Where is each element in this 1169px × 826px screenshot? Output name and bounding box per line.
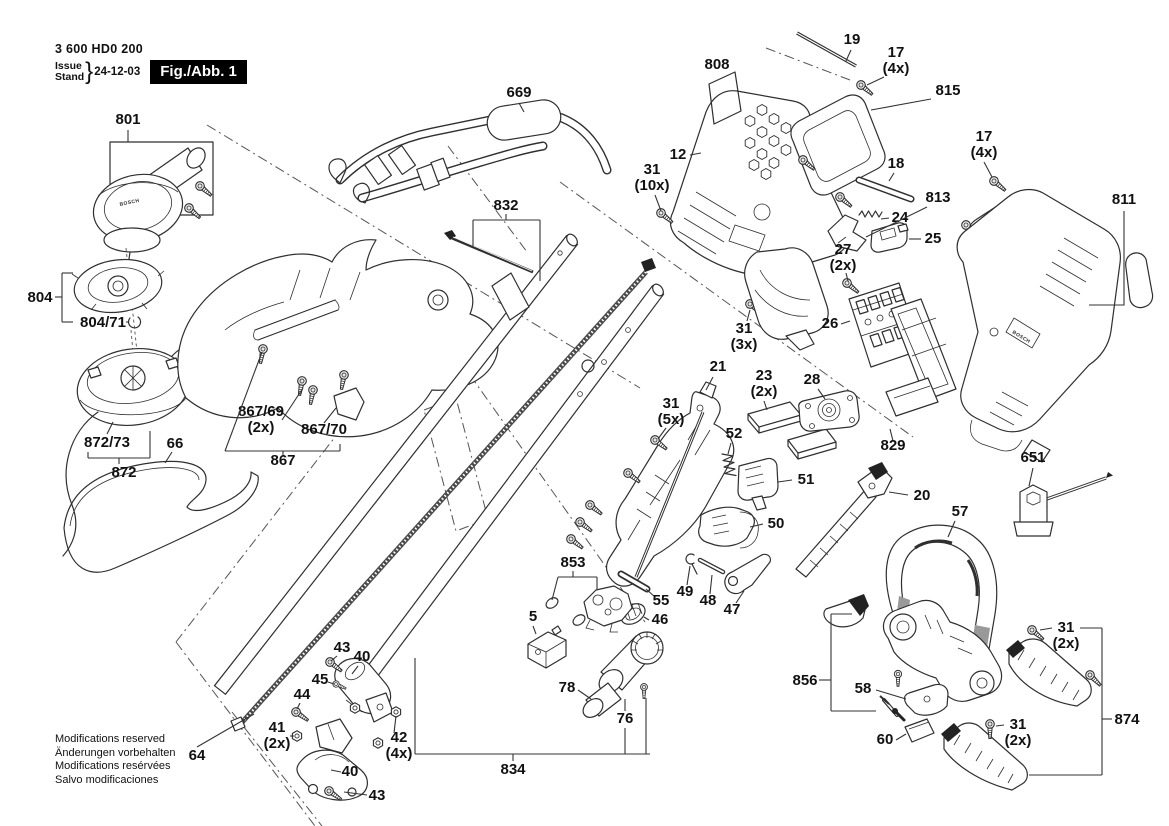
callout-46: 46 <box>652 611 669 628</box>
callout-17-top: 17 <box>888 44 905 61</box>
parts-diagram-page: BOSCH <box>0 0 1169 826</box>
callout-867-69: 867/69 <box>238 403 284 420</box>
hex-tool-651 <box>1014 472 1113 536</box>
bump-guard-loop-66 <box>64 461 258 572</box>
exploded-parts-drawing: BOSCH <box>0 0 1169 826</box>
modifications-notice: Modifications reserved Änderungen vorbeh… <box>55 733 175 787</box>
callout-872: 872 <box>111 464 136 481</box>
leader-20 <box>889 492 908 495</box>
callout-17-right: 17 <box>976 128 993 145</box>
wedge-60 <box>905 719 934 742</box>
callout-60: 60 <box>877 731 894 748</box>
callout-872-73: 872/73 <box>84 434 130 451</box>
callout-31-3x-qty: (3x) <box>731 336 758 353</box>
callout-5: 5 <box>529 608 537 625</box>
callout-669: 669 <box>506 84 531 101</box>
callout-811: 811 <box>1112 191 1136 208</box>
leader-19 <box>846 50 851 61</box>
handle-mount-856 <box>824 594 1002 742</box>
shoulder-strap-669 <box>329 97 607 203</box>
callout-31-2x-b: 31 <box>1010 716 1027 733</box>
callout-57: 57 <box>952 503 969 520</box>
leader-64 <box>197 714 254 747</box>
housing-half-811: BOSCH <box>957 190 1152 462</box>
leader-5 <box>533 626 536 634</box>
coupler-parts <box>528 586 663 721</box>
callout-832: 832 <box>493 197 518 214</box>
clip-49 <box>686 554 697 574</box>
callout-867: 867 <box>270 452 295 469</box>
callout-76: 76 <box>617 710 634 727</box>
switch-5 <box>528 632 566 668</box>
callout-42-qty: (4x) <box>386 745 413 762</box>
stand-label: Stand <box>55 72 84 83</box>
callout-78: 78 <box>559 679 576 696</box>
callout-31-2x-b-qty: (2x) <box>1005 732 1032 749</box>
notice-line-fr: Modifications resérvées <box>55 760 175 774</box>
o-ring <box>571 613 587 628</box>
tube-clamp-group <box>290 656 401 803</box>
leader-31-2x-b <box>996 725 1004 726</box>
callout-801: 801 <box>115 111 140 128</box>
strap-pad <box>485 97 563 142</box>
clamp-58 <box>905 684 948 715</box>
callout-27: 27 <box>835 241 852 258</box>
callout-41: 41 <box>269 719 286 736</box>
issue-stand-labels: Issue Stand <box>55 61 84 83</box>
leader-17-top <box>867 77 884 85</box>
leader-31-10x <box>655 195 661 211</box>
callout-31-10x: 31 <box>644 161 661 178</box>
callout-856: 856 <box>792 672 817 689</box>
callout-874: 874 <box>1114 711 1140 728</box>
callout-853: 853 <box>560 554 585 571</box>
callout-651: 651 <box>1020 449 1045 466</box>
lever-47 <box>725 554 771 593</box>
callout-50: 50 <box>768 515 785 532</box>
brace-glyph: } <box>85 58 93 86</box>
callout-45: 45 <box>312 671 329 688</box>
type-number: 3 600 HD0 200 <box>55 42 247 56</box>
callout-867-70: 867/70 <box>301 421 347 438</box>
callout-64: 64 <box>189 747 206 764</box>
callout-804: 804 <box>27 289 53 306</box>
callout-17-top-qty: (4x) <box>883 60 910 77</box>
notice-line-de: Änderungen vorbehalten <box>55 747 175 761</box>
callout-23: 23 <box>756 367 773 384</box>
callout-23-qty: (2x) <box>751 383 778 400</box>
callout-41-qty: (2x) <box>264 735 291 752</box>
callout-18: 18 <box>888 155 905 172</box>
callout-49: 49 <box>677 583 694 600</box>
leader-31-2x-a <box>1040 628 1052 630</box>
issue-date: 24-12-03 <box>94 66 140 78</box>
callout-25: 25 <box>925 230 942 247</box>
callout-42: 42 <box>391 729 408 746</box>
callout-40-top: 40 <box>354 648 371 665</box>
callout-804-71: 804/71 <box>80 314 126 331</box>
notice-line-es: Salvo modificaciones <box>55 774 175 788</box>
leader-26 <box>841 321 850 324</box>
leader-815 <box>871 99 931 110</box>
callout-52: 52 <box>726 425 743 442</box>
spring-24 <box>859 211 882 217</box>
title-block: 3 600 HD0 200 Issue Stand } 24-12-03 Fig… <box>55 42 247 86</box>
callout-40-bottom: 40 <box>342 763 359 780</box>
motor-mount-housing <box>745 248 829 350</box>
callout-12: 12 <box>670 146 687 163</box>
callout-51: 51 <box>798 471 815 488</box>
battery-rail <box>1126 253 1153 308</box>
leader-46 <box>644 617 649 620</box>
callout-47: 47 <box>724 601 741 618</box>
callout-48: 48 <box>700 592 717 609</box>
callout-829: 829 <box>880 437 905 454</box>
callout-813: 813 <box>925 189 950 206</box>
figure-badge: Fig./Abb. 1 <box>150 60 247 84</box>
callout-815: 815 <box>935 82 960 99</box>
callout-31-10x-qty: (10x) <box>634 177 669 194</box>
spool-cover-804 <box>71 254 165 318</box>
callout-867-69-qty: (2x) <box>248 419 275 436</box>
callout-28: 28 <box>804 371 821 388</box>
callout-43-bottom: 43 <box>369 787 386 804</box>
callout-834: 834 <box>500 761 526 778</box>
leader-18 <box>889 173 894 181</box>
leader-78 <box>578 690 591 699</box>
o-ring <box>544 596 560 611</box>
callout-26: 26 <box>822 315 839 332</box>
leader-853 <box>552 577 558 600</box>
callout-20: 20 <box>914 487 931 504</box>
callout-31-2x-a-qty: (2x) <box>1053 635 1080 652</box>
cable-tie-832 <box>444 230 533 272</box>
callout-27-qty: (2x) <box>830 257 857 274</box>
callout-31-3x: 31 <box>736 320 753 337</box>
callout-55: 55 <box>653 592 670 609</box>
callout-44: 44 <box>294 686 311 703</box>
leader-24 <box>881 218 889 219</box>
leader-51 <box>778 480 792 482</box>
speaker-28 <box>799 391 859 431</box>
callout-58: 58 <box>855 680 872 697</box>
callout-31-5x-qty: (5x) <box>658 411 685 428</box>
callout-21: 21 <box>710 358 727 375</box>
leader-651 <box>1029 468 1033 486</box>
callout-43-top: 43 <box>334 639 351 656</box>
callout-808: 808 <box>704 56 729 73</box>
callout-31-5x: 31 <box>663 395 680 412</box>
callout-31-2x-a: 31 <box>1058 619 1075 636</box>
notice-line-en: Modifications reserved <box>55 733 175 747</box>
leader-17-right <box>984 162 992 177</box>
callout-17-right-qty: (4x) <box>971 144 998 161</box>
callout-66: 66 <box>167 435 184 452</box>
lock-button-51 <box>738 458 778 500</box>
leader-60 <box>896 734 906 740</box>
callout-19: 19 <box>844 31 861 48</box>
